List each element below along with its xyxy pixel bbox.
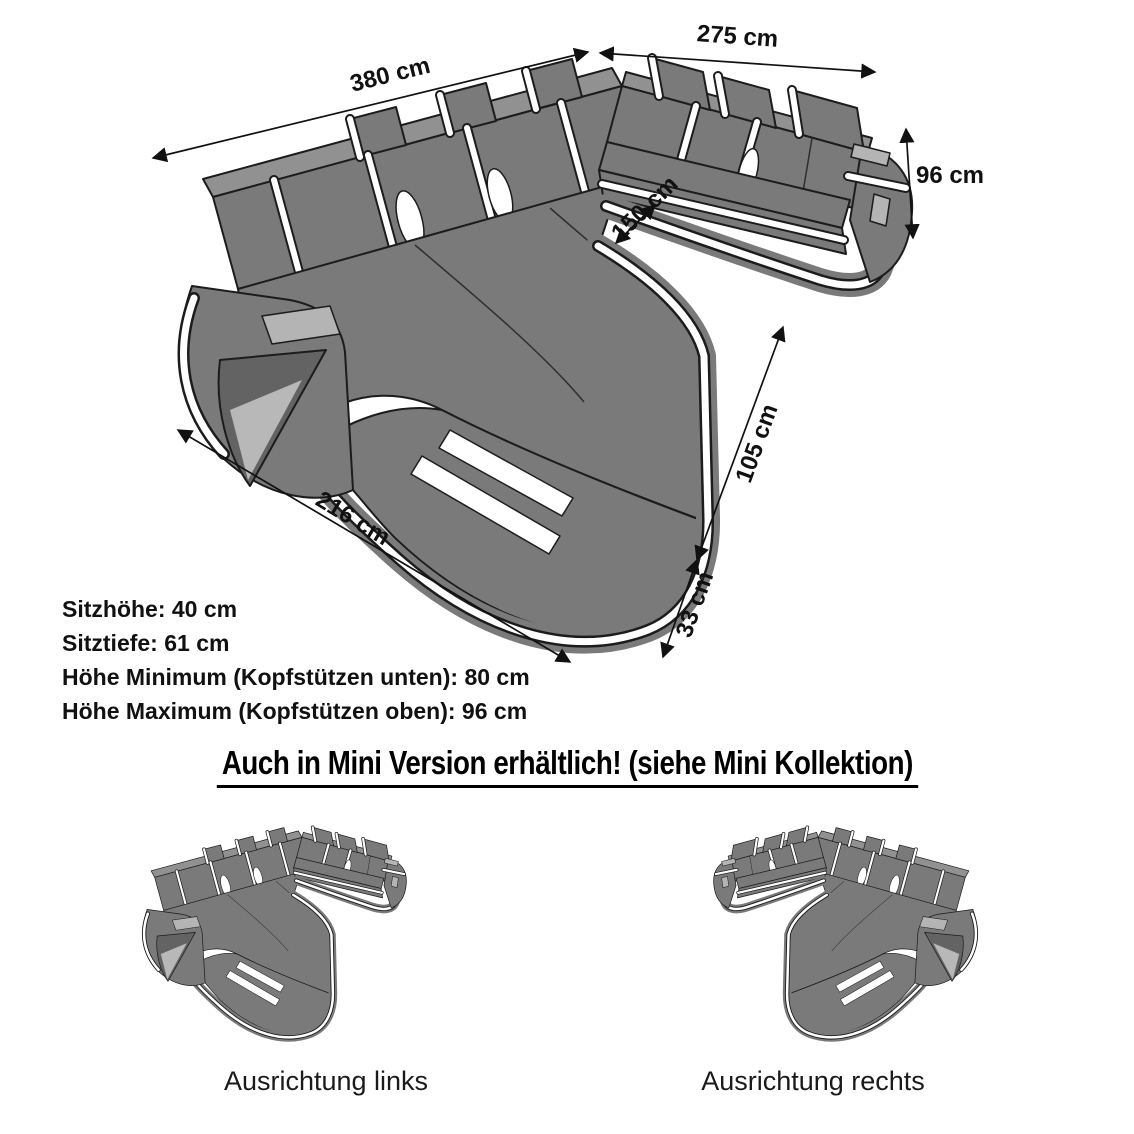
page: 380 cm 275 cm 96 cm 150 cm 216 cm 105 cm… (0, 0, 1134, 1134)
dimension-line-275 (600, 53, 875, 72)
spec-height-min: Höhe Minimum (Kopfstützen unten): 80 cm (62, 660, 530, 694)
variant-label-links: Ausrichtung links (224, 1066, 428, 1097)
dimension-label-275: 275 cm (696, 20, 779, 53)
dimension-label-105: 105 cm (730, 401, 783, 487)
sofa-illustration-main (180, 58, 912, 642)
mini-section: Auch in Mini Version erhältlich! (siehe … (0, 744, 1134, 788)
sofa-illustration-mini-right (714, 827, 977, 1037)
diagram-canvas: 380 cm 275 cm 96 cm 150 cm 216 cm 105 cm… (0, 0, 1134, 1134)
sofa-illustration-mini-left (143, 827, 406, 1037)
specs-block: Sitzhöhe: 40 cm Sitztiefe: 61 cm Höhe Mi… (62, 592, 530, 728)
spec-seat-depth: Sitztiefe: 61 cm (62, 626, 530, 660)
mini-section-heading: Auch in Mini Version erhältlich! (siehe … (216, 744, 917, 788)
variant-label-rechts: Ausrichtung rechts (701, 1066, 925, 1097)
dimension-label-96: 96 cm (916, 162, 984, 189)
spec-height-max: Höhe Maximum (Kopfstützen oben): 96 cm (62, 694, 530, 728)
dimension-label-380: 380 cm (347, 52, 433, 98)
spec-seat-height: Sitzhöhe: 40 cm (62, 592, 530, 626)
